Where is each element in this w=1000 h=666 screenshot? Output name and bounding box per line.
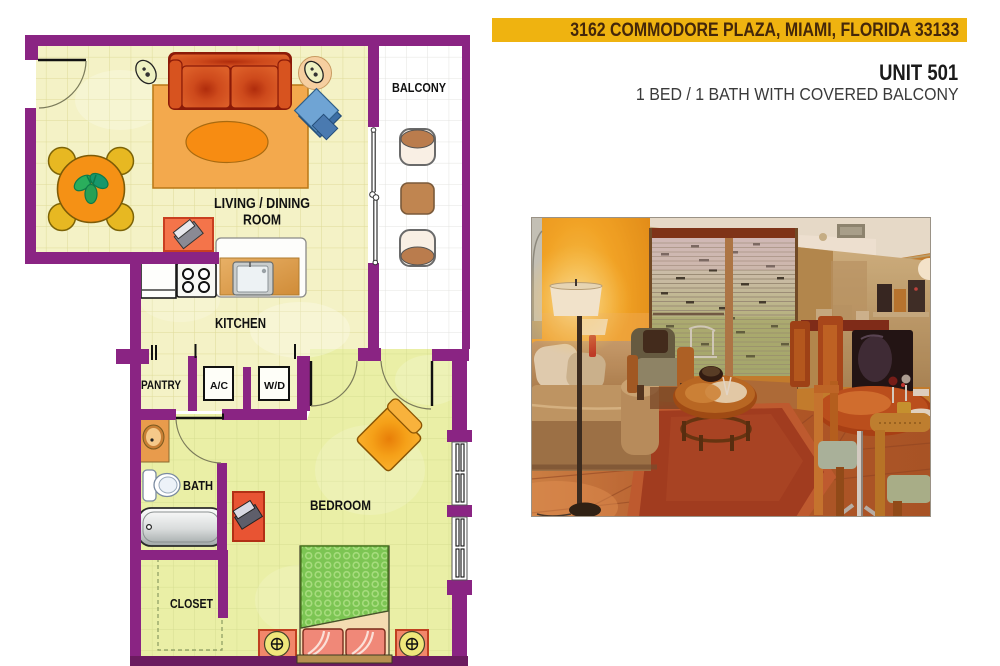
svg-text:BEDROOM: BEDROOM <box>310 497 371 513</box>
svg-text:A/C: A/C <box>210 380 228 392</box>
svg-text:ROOM: ROOM <box>243 213 281 229</box>
svg-text:KITCHEN: KITCHEN <box>215 316 266 332</box>
svg-text:BALCONY: BALCONY <box>392 80 446 95</box>
svg-text:CLOSET: CLOSET <box>170 596 213 611</box>
svg-text:W/D: W/D <box>264 380 285 392</box>
svg-text:BATH: BATH <box>183 478 213 493</box>
svg-text:LIVING / DINING: LIVING / DINING <box>214 196 310 212</box>
svg-text:PANTRY: PANTRY <box>141 380 181 392</box>
